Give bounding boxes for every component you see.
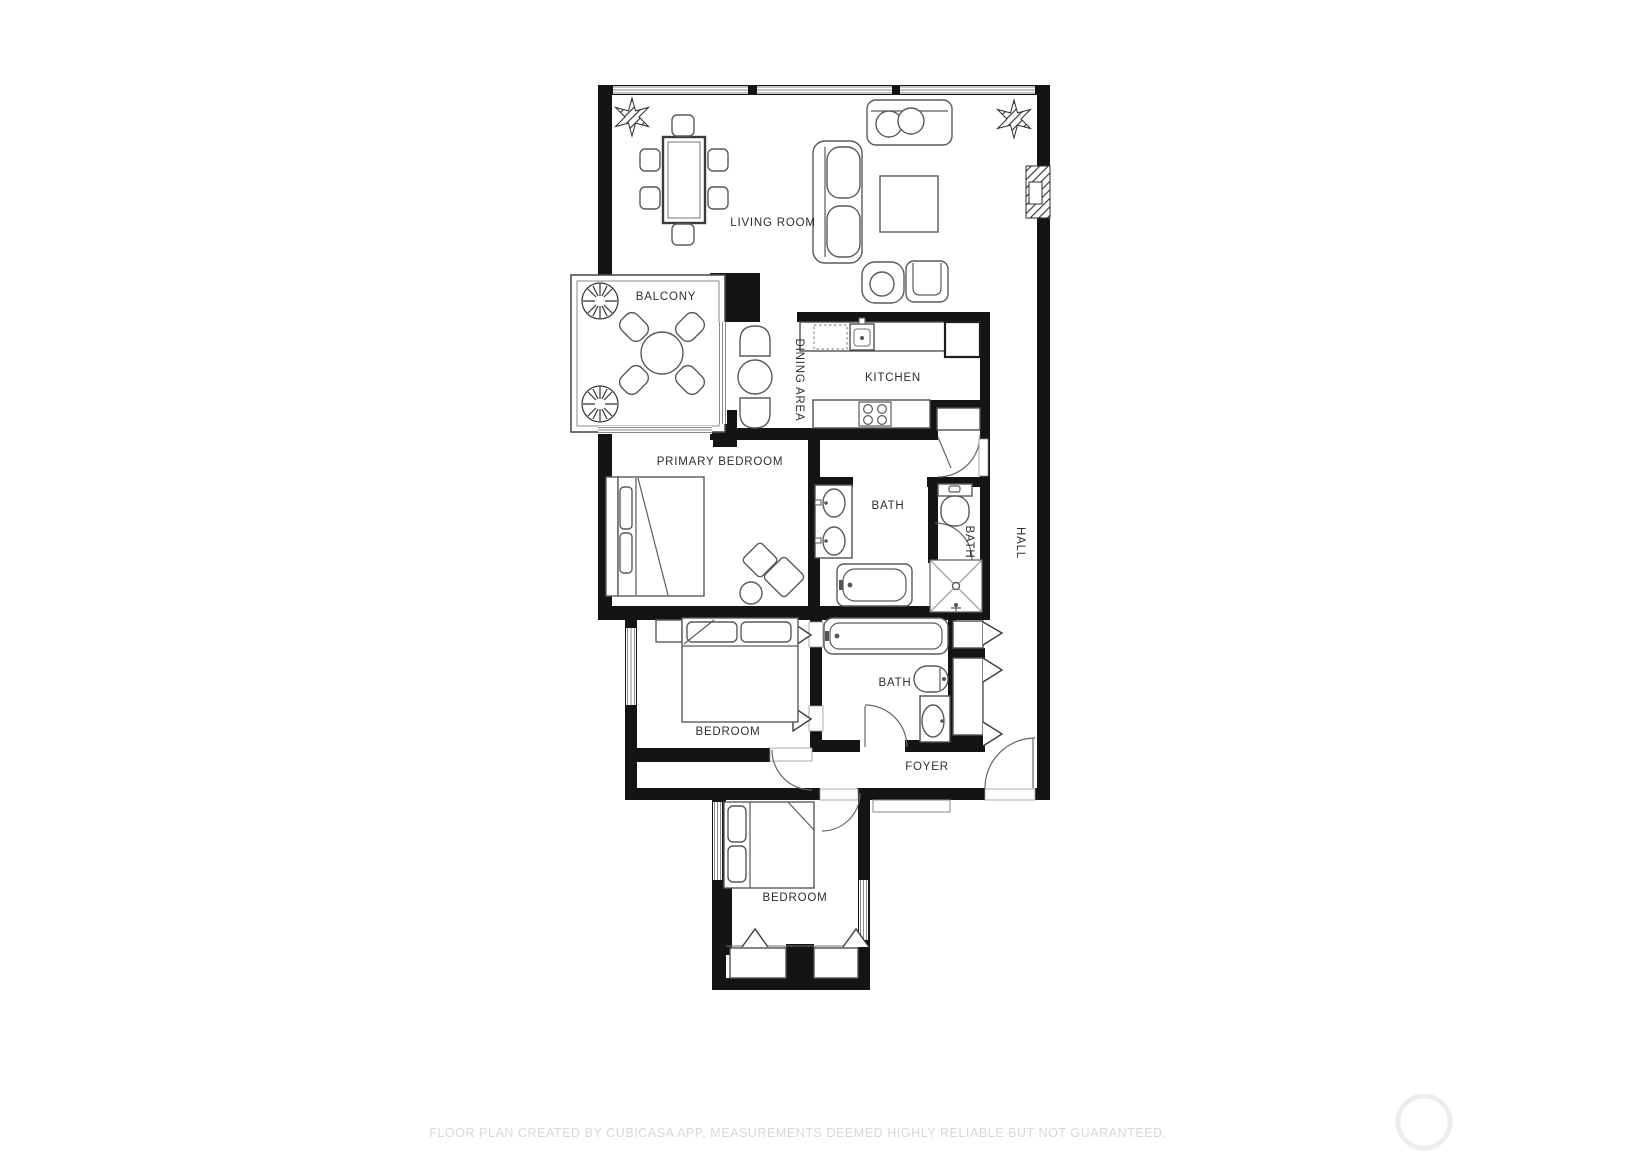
dining-table-icon [640,115,728,245]
cabinet-icon [937,408,980,430]
bed-icon [724,802,814,888]
plant-icon [998,100,1031,138]
room-label-bath-shower: BATH [963,525,975,558]
chair-icon [740,542,805,604]
bed-icon [606,477,704,596]
bathtub-icon [837,564,912,606]
room-primary-bedroom [606,477,805,604]
room-label-hall: HALL [1014,527,1026,559]
stove-icon [859,402,891,426]
nightstand-icon [656,620,682,642]
door-foyer-bedroom [770,748,812,790]
cased-opening-hall [979,439,988,476]
window-bedroom-lower-right [859,880,868,940]
bathtub-icon [824,618,948,654]
sink-icon [920,696,950,742]
window-top-2 [757,86,892,94]
window-top-1 [613,86,748,94]
room-label-bedroom-lower: BEDROOM [762,892,827,904]
window-balcony-slider [718,322,727,424]
room-label-kitchen: KITCHEN [865,372,921,384]
armchair-icon [862,262,904,303]
watermark-logo [1398,1096,1450,1148]
window-bedroom-middle [626,628,636,705]
chair-icon [740,398,770,428]
room-living [616,98,1031,303]
floor-plan-page: LIVING ROOM BALCONY DINING AREA KITCHEN … [0,0,1647,1164]
room-label-foyer: FOYER [905,761,949,773]
sofa-icon [813,141,862,263]
entry-landing [873,800,950,812]
room-label-living: LIVING ROOM [730,217,815,229]
window-primary-balcony [598,426,712,434]
double-sink-icon [815,485,852,558]
door-bedroom-lower [820,789,860,831]
room-dining [738,326,772,428]
shower-icon [930,560,982,612]
round-table-icon [738,360,772,394]
bed-icon [682,618,798,722]
footer-disclaimer: FLOOR PLAN CREATED BY CUBICASA APP, MEAS… [429,1126,1167,1140]
room-label-primary-bedroom: PRIMARY BEDROOM [657,456,784,468]
toilet-icon [914,666,948,692]
room-bedroom-lower [724,802,814,888]
window-top-3 [900,86,1035,94]
armchair-square-icon [906,261,948,302]
floor-plan-canvas: LIVING ROOM BALCONY DINING AREA KITCHEN … [0,0,1647,1164]
room-label-bath-guest: BATH [878,677,911,689]
room-label-bath-main: BATH [871,500,904,512]
room-label-bedroom-middle: BEDROOM [695,726,760,738]
plant-icon [616,98,649,136]
fridge-icon [945,322,980,357]
door-bath-guest [865,705,907,747]
room-bedroom-middle [656,618,798,722]
door-kitchen-vestibule [938,435,980,477]
loveseat-icon [867,100,952,145]
fireplace-icon [1026,166,1050,218]
coffee-table-icon [880,176,938,232]
room-label-dining: DINING AREA [793,339,805,422]
room-label-balcony: BALCONY [636,291,697,303]
door-entry [985,738,1035,800]
window-bedroom-lower-left [713,802,722,880]
chair-icon [740,326,770,356]
toilet-icon [938,484,972,526]
